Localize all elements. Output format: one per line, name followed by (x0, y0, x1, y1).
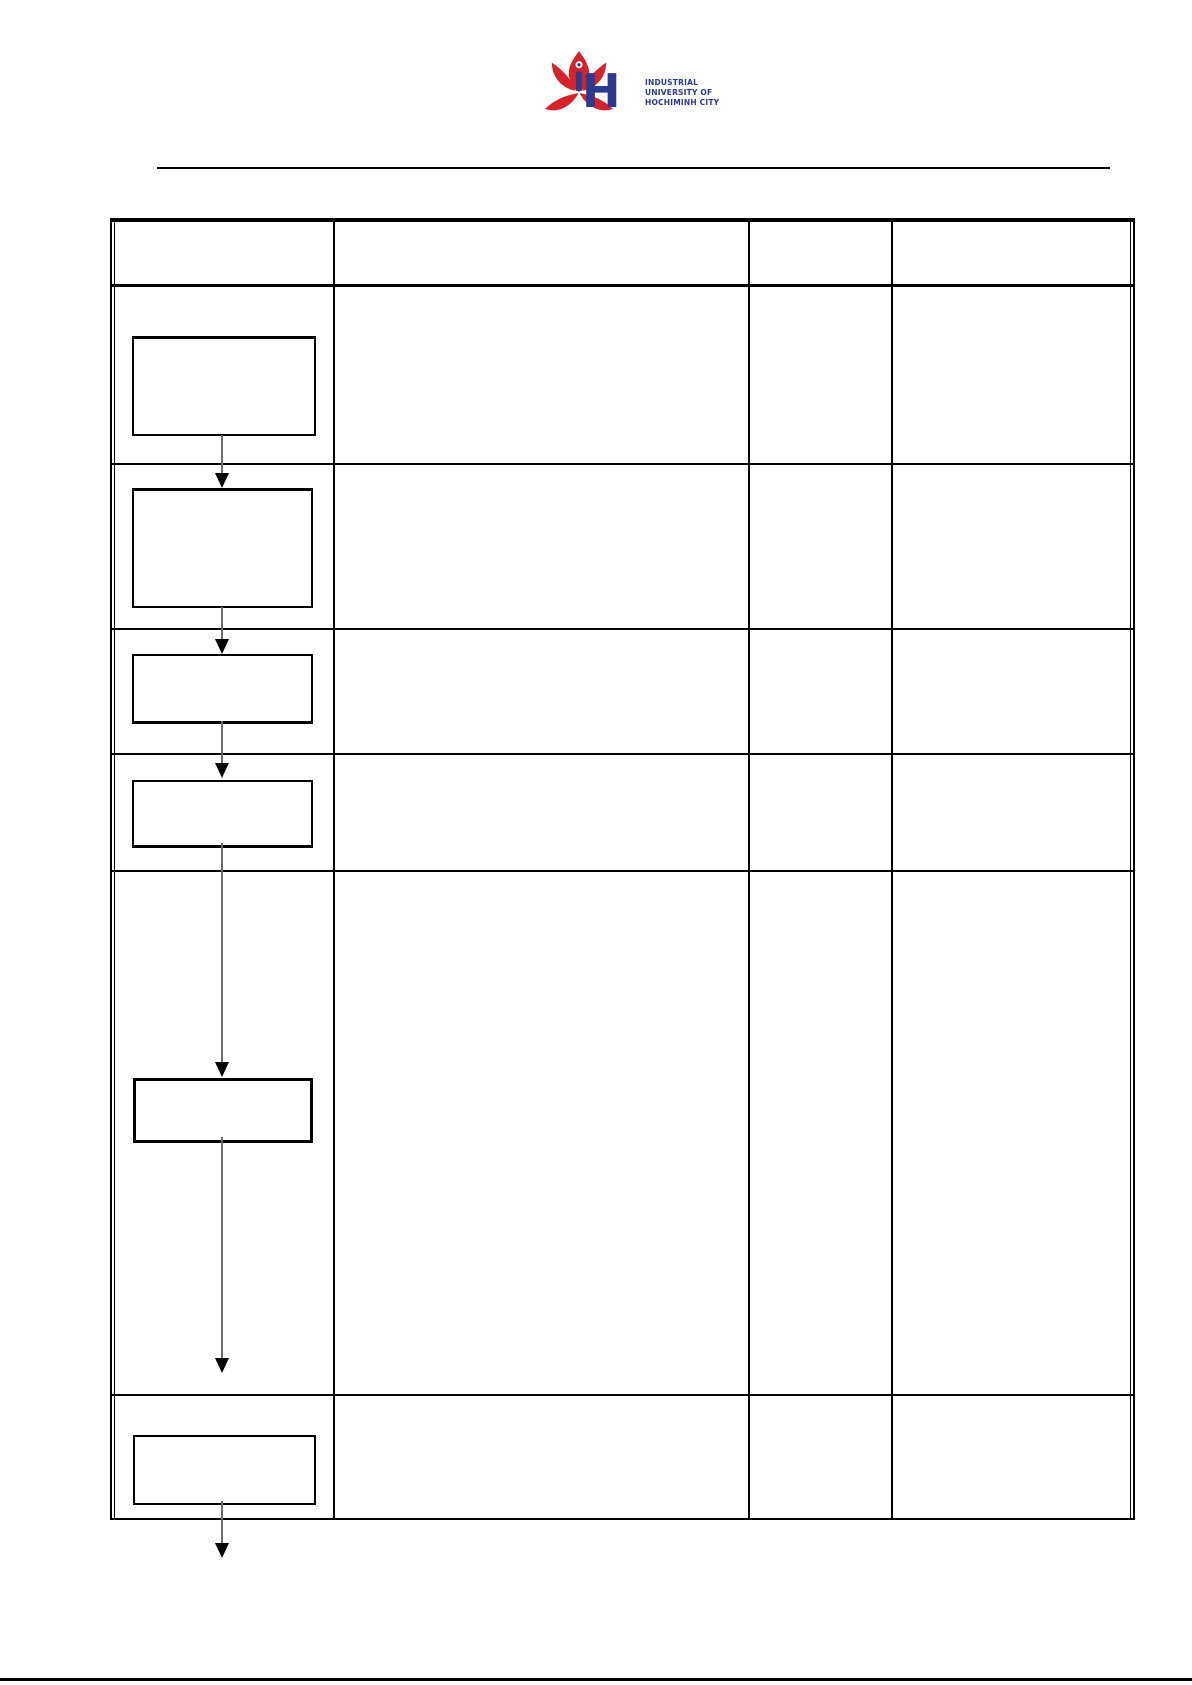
flow-box-2 (132, 488, 313, 608)
logo-monogram-h: H (582, 68, 619, 114)
flow-arrow-4-stem (221, 843, 223, 1064)
flow-box-1 (132, 336, 316, 436)
table-left-border-inner (114, 218, 115, 1520)
column-divider-3 (891, 218, 893, 1518)
university-logo: H INDUSTRIAL UNIVERSITY OF HOCHIMINH CIT… (545, 50, 715, 120)
row-divider-2 (110, 628, 1134, 630)
logo-text-line-2: UNIVERSITY OF (645, 88, 715, 98)
flow-arrow-5-stem (221, 1137, 223, 1360)
table-bottom-border (110, 1518, 1134, 1520)
flow-arrow-6-head (215, 1543, 229, 1558)
header-rule (157, 167, 1110, 169)
flow-box-5 (133, 1078, 313, 1143)
flow-arrow-3-head (215, 763, 229, 778)
flow-arrow-6-stem (221, 1501, 223, 1545)
flow-arrow-3-stem (221, 721, 223, 765)
row-divider-3 (110, 753, 1134, 755)
flow-arrow-1-head (215, 473, 229, 488)
table-right-border-inner (1130, 218, 1131, 1520)
flow-box-4 (132, 780, 313, 848)
column-divider-1 (333, 218, 335, 1518)
row-divider-1 (110, 463, 1134, 465)
flow-arrow-4-head (215, 1062, 229, 1077)
table-top-border (110, 218, 1134, 222)
table-right-border-outer (1133, 218, 1135, 1520)
logo-text-line-1: INDUSTRIAL (645, 78, 715, 88)
header-row-bottom-border (110, 284, 1134, 287)
flow-arrow-1-stem (221, 435, 223, 475)
column-divider-2 (748, 218, 750, 1518)
row-divider-5 (110, 1394, 1134, 1396)
flow-arrow-5-head (215, 1358, 229, 1373)
table-left-border-outer (110, 218, 112, 1520)
flow-box-3 (132, 654, 313, 724)
row-divider-4 (110, 870, 1134, 872)
logo-text-line-3: HOCHIMINH CITY (645, 98, 715, 108)
flow-box-6 (133, 1435, 316, 1505)
flow-arrow-2-head (215, 639, 229, 654)
flow-arrow-2-stem (221, 607, 223, 641)
logo-text-block: INDUSTRIAL UNIVERSITY OF HOCHIMINH CITY (645, 78, 715, 108)
footer-rule (0, 1678, 1192, 1681)
